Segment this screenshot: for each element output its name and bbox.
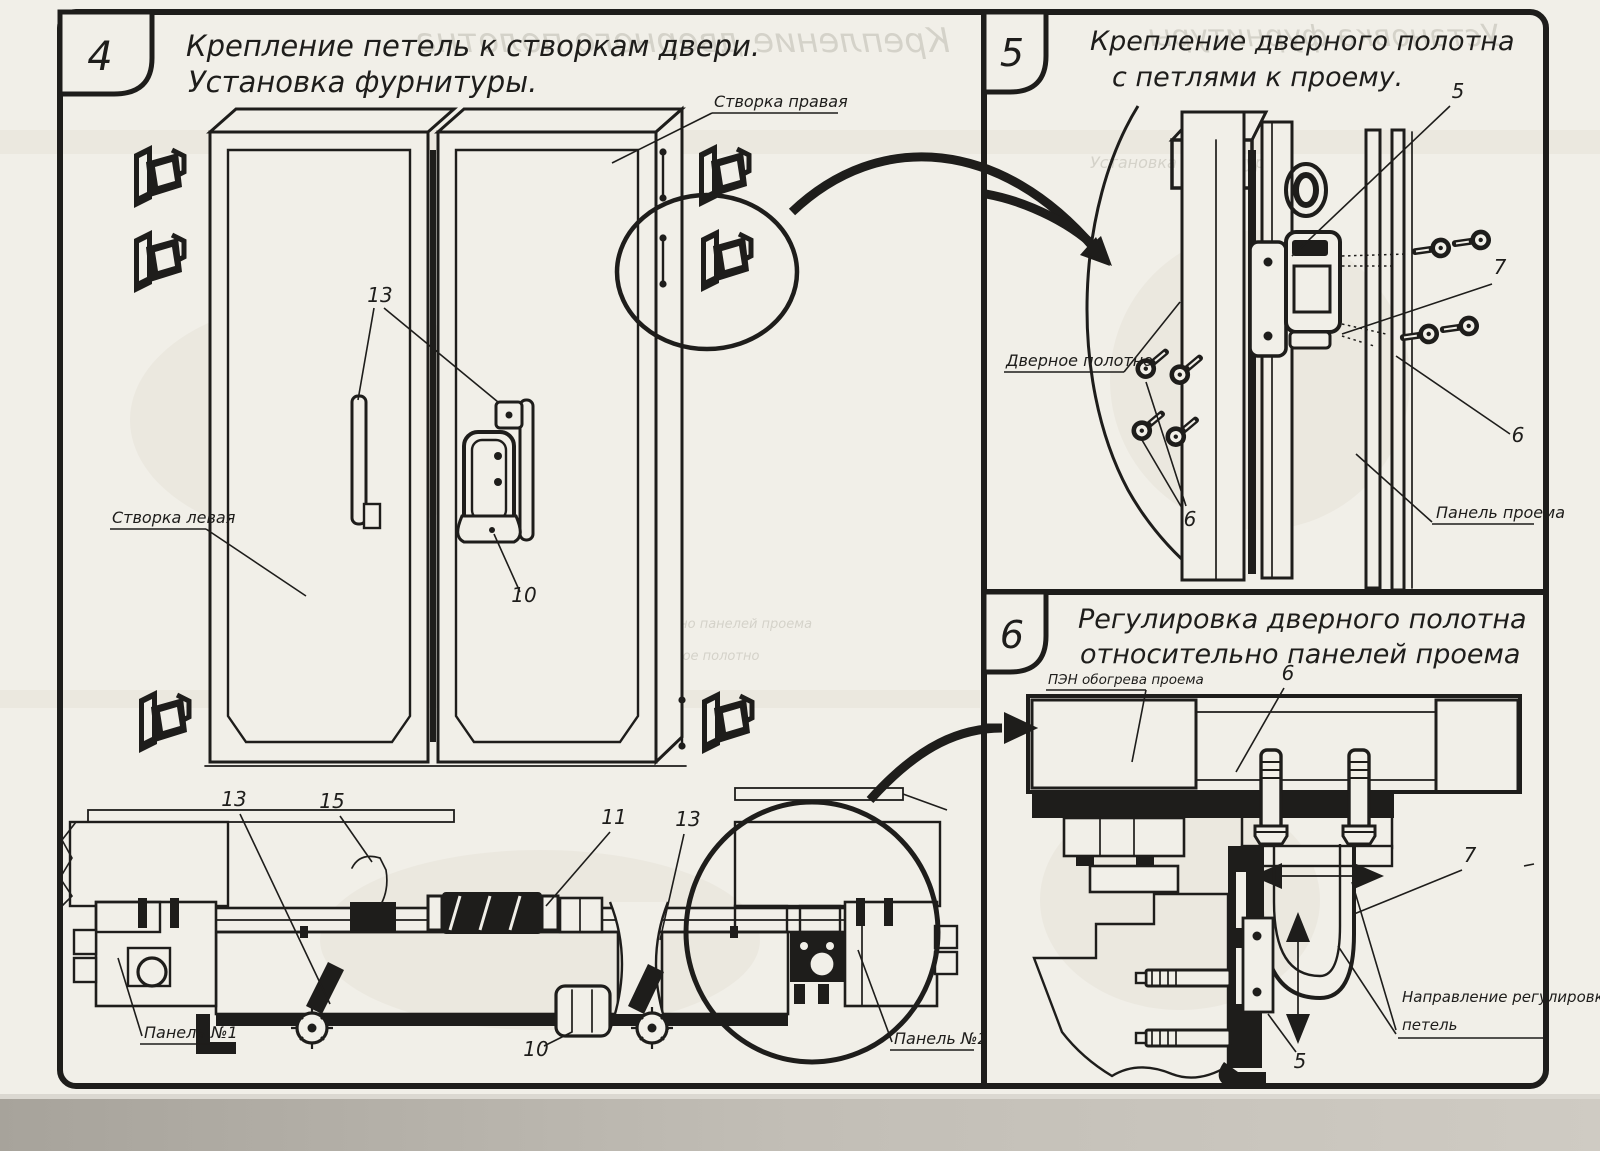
label-right-leaf: Створка правая — [714, 92, 848, 111]
callout-13: 13 — [367, 283, 392, 307]
label-direction-line1: Направление регулировки — [1402, 988, 1600, 1006]
horizontal-bolt — [1136, 1030, 1230, 1046]
callout-5: 5 — [1294, 1049, 1307, 1073]
callout-7: 7 — [1494, 255, 1507, 279]
step6-title-line1: Регулировка дверного полотна — [1078, 604, 1527, 635]
left-door-front — [210, 132, 428, 762]
scan-edge-strip — [0, 1098, 1600, 1151]
hinge-assembly — [1250, 232, 1340, 356]
latch-block-section — [556, 986, 610, 1036]
callout-13: 13 — [675, 807, 700, 831]
label-door-leaf: Дверное полотно — [1005, 351, 1153, 370]
callout-11: 11 — [601, 805, 626, 829]
callout-6: 6 — [1282, 661, 1295, 685]
assembly-drawing: Крепление дверного полотна Установка фур… — [0, 0, 1600, 1151]
step4-title-line2: Установка фурнитуры. — [188, 65, 537, 99]
label-direction-line2: петель — [1402, 1016, 1457, 1034]
label-panel-no1: Панель №1 — [144, 1023, 238, 1042]
callout-15: 15 — [319, 789, 344, 813]
step6-number: 6 — [1000, 613, 1024, 657]
step6-title-line2: относительно панелей проема — [1080, 639, 1520, 670]
adjustment-bolt-icon — [1343, 750, 1375, 844]
door-edge-seam — [1248, 150, 1256, 574]
horizontal-bolt — [1136, 970, 1230, 986]
right-door-top-face — [438, 109, 682, 132]
callout-5: 5 — [1452, 79, 1465, 103]
step5-number: 5 — [1000, 31, 1024, 75]
left-door-top-face — [210, 109, 454, 132]
label-heater: ПЭН обогрева проема — [1048, 672, 1204, 688]
callout-13: 13 — [221, 787, 246, 811]
step4-title-line1: Крепление петель к створкам двери. — [186, 29, 760, 63]
strap-channel — [1242, 846, 1392, 866]
label-panel-no2: Панель №2 — [894, 1029, 988, 1048]
lock-mechanism — [428, 892, 602, 934]
callout-6: 6 — [1512, 423, 1525, 447]
callout-6: 6 — [1184, 507, 1197, 531]
paper-edge-shadow — [0, 1094, 1600, 1099]
callout-10: 10 — [523, 1037, 548, 1061]
label-left-leaf: Створка левая — [112, 508, 236, 527]
callout-7: 7 — [1464, 843, 1477, 867]
adjustment-bolt-icon — [1255, 750, 1287, 844]
beam-bottom-band — [1032, 792, 1394, 818]
lever-mount — [350, 902, 396, 932]
step4-number: 4 — [87, 34, 112, 80]
step5-title-line1: Крепление дверного полотна — [1090, 26, 1515, 57]
door-seam — [430, 150, 436, 742]
scanned-drawing-sheet: Крепление дверного полотна Установка фур… — [0, 0, 1600, 1151]
step5-title-line2: с петлями к проему. — [1112, 62, 1403, 93]
opening-panel-bar — [1366, 130, 1380, 588]
callout-10: 10 — [511, 583, 536, 607]
